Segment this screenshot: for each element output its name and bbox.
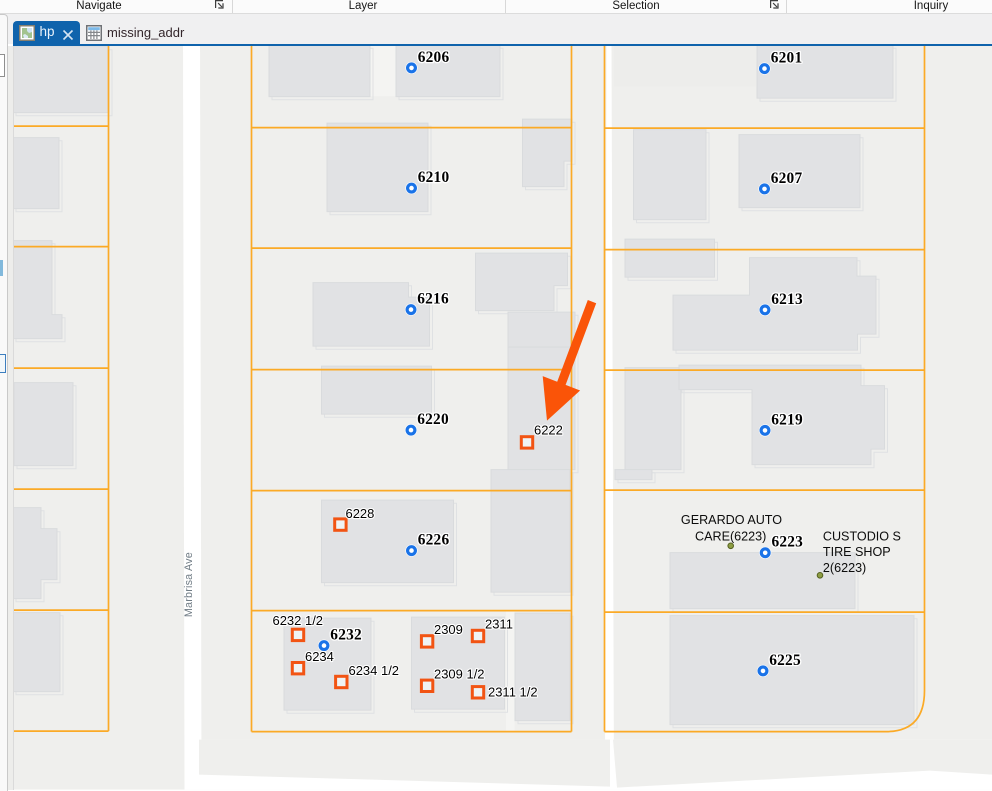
svg-text:6223: 6223 <box>771 534 803 551</box>
svg-text:6234 1/2: 6234 1/2 <box>349 663 400 678</box>
svg-text:6232: 6232 <box>330 627 362 644</box>
svg-text:6219: 6219 <box>771 412 803 429</box>
svg-text:CARE(6223): CARE(6223) <box>695 530 766 544</box>
svg-text:Marbrisa Ave: Marbrisa Ave <box>183 552 195 617</box>
svg-text:2309: 2309 <box>434 622 463 637</box>
svg-text:6225: 6225 <box>769 652 801 669</box>
svg-text:TIRE SHOP: TIRE SHOP <box>823 545 891 559</box>
svg-text:6216: 6216 <box>417 291 449 308</box>
svg-text:6201: 6201 <box>771 50 803 67</box>
svg-text:2311 1/2: 2311 1/2 <box>488 685 538 700</box>
svg-text:6220: 6220 <box>417 411 449 428</box>
svg-text:GERARDO AUTO: GERARDO AUTO <box>681 513 782 527</box>
svg-text:6206: 6206 <box>418 49 450 66</box>
svg-text:6226: 6226 <box>418 532 450 549</box>
svg-text:6232 1/2: 6232 1/2 <box>273 613 324 628</box>
svg-text:6234: 6234 <box>305 649 334 664</box>
svg-text:6213: 6213 <box>771 291 803 308</box>
svg-text:6228: 6228 <box>346 506 375 521</box>
svg-text:6222: 6222 <box>534 423 563 438</box>
svg-text:CUSTODIO S: CUSTODIO S <box>823 530 901 544</box>
svg-text:2311: 2311 <box>485 617 513 632</box>
svg-text:6207: 6207 <box>771 170 803 187</box>
svg-text:2(6223): 2(6223) <box>823 561 866 575</box>
svg-text:6210: 6210 <box>418 169 450 186</box>
svg-text:2309 1/2: 2309 1/2 <box>434 667 485 682</box>
